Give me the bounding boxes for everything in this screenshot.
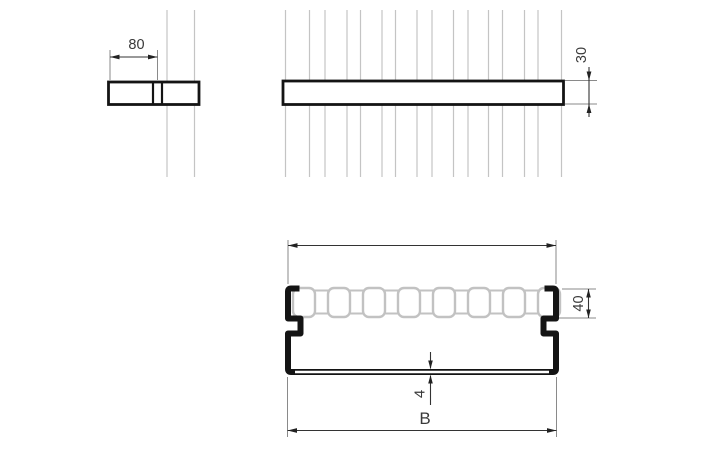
side-view: 80 <box>109 10 200 177</box>
arrowhead-left-icon <box>288 428 298 433</box>
arrowhead-left-icon <box>110 55 120 60</box>
technical-drawing-canvas: 80 30 <box>0 0 705 450</box>
arrowhead-left-icon <box>288 243 298 248</box>
dimension-top-width <box>288 240 556 284</box>
dimension-30: 30 <box>565 47 597 117</box>
arrowhead-down-icon <box>587 72 592 81</box>
arrowhead-right-icon <box>547 243 557 248</box>
mesh-rung <box>398 288 420 317</box>
section-view: 40 4 B <box>288 240 597 437</box>
arrowhead-down-icon <box>428 361 433 370</box>
mesh-rung <box>328 288 350 317</box>
mesh-rung <box>468 288 490 317</box>
front-view: 30 <box>283 10 597 177</box>
mesh-rung <box>293 288 315 317</box>
drawing-svg: 80 30 <box>0 0 705 450</box>
arrowhead-right-icon <box>547 428 557 433</box>
section-mesh-rungs <box>293 288 560 317</box>
arrowhead-up-icon <box>428 375 433 384</box>
dimension-label-30: 30 <box>574 47 590 63</box>
dimension-label-B: B <box>419 409 430 428</box>
mesh-rung <box>433 288 455 317</box>
dimension-80: 80 <box>110 37 158 80</box>
mesh-rung <box>363 288 385 317</box>
front-view-cover-outline <box>283 81 564 105</box>
dimension-B: B <box>288 377 557 437</box>
arrowhead-right-icon <box>148 55 158 60</box>
arrowhead-up-icon <box>587 104 592 113</box>
mesh-rung <box>503 288 525 317</box>
dimension-4: 4 <box>412 352 433 405</box>
dimension-label-4: 4 <box>412 390 429 398</box>
dimension-40: 40 <box>559 289 596 318</box>
dimension-label-80: 80 <box>128 37 144 53</box>
dimension-label-40: 40 <box>571 295 587 311</box>
